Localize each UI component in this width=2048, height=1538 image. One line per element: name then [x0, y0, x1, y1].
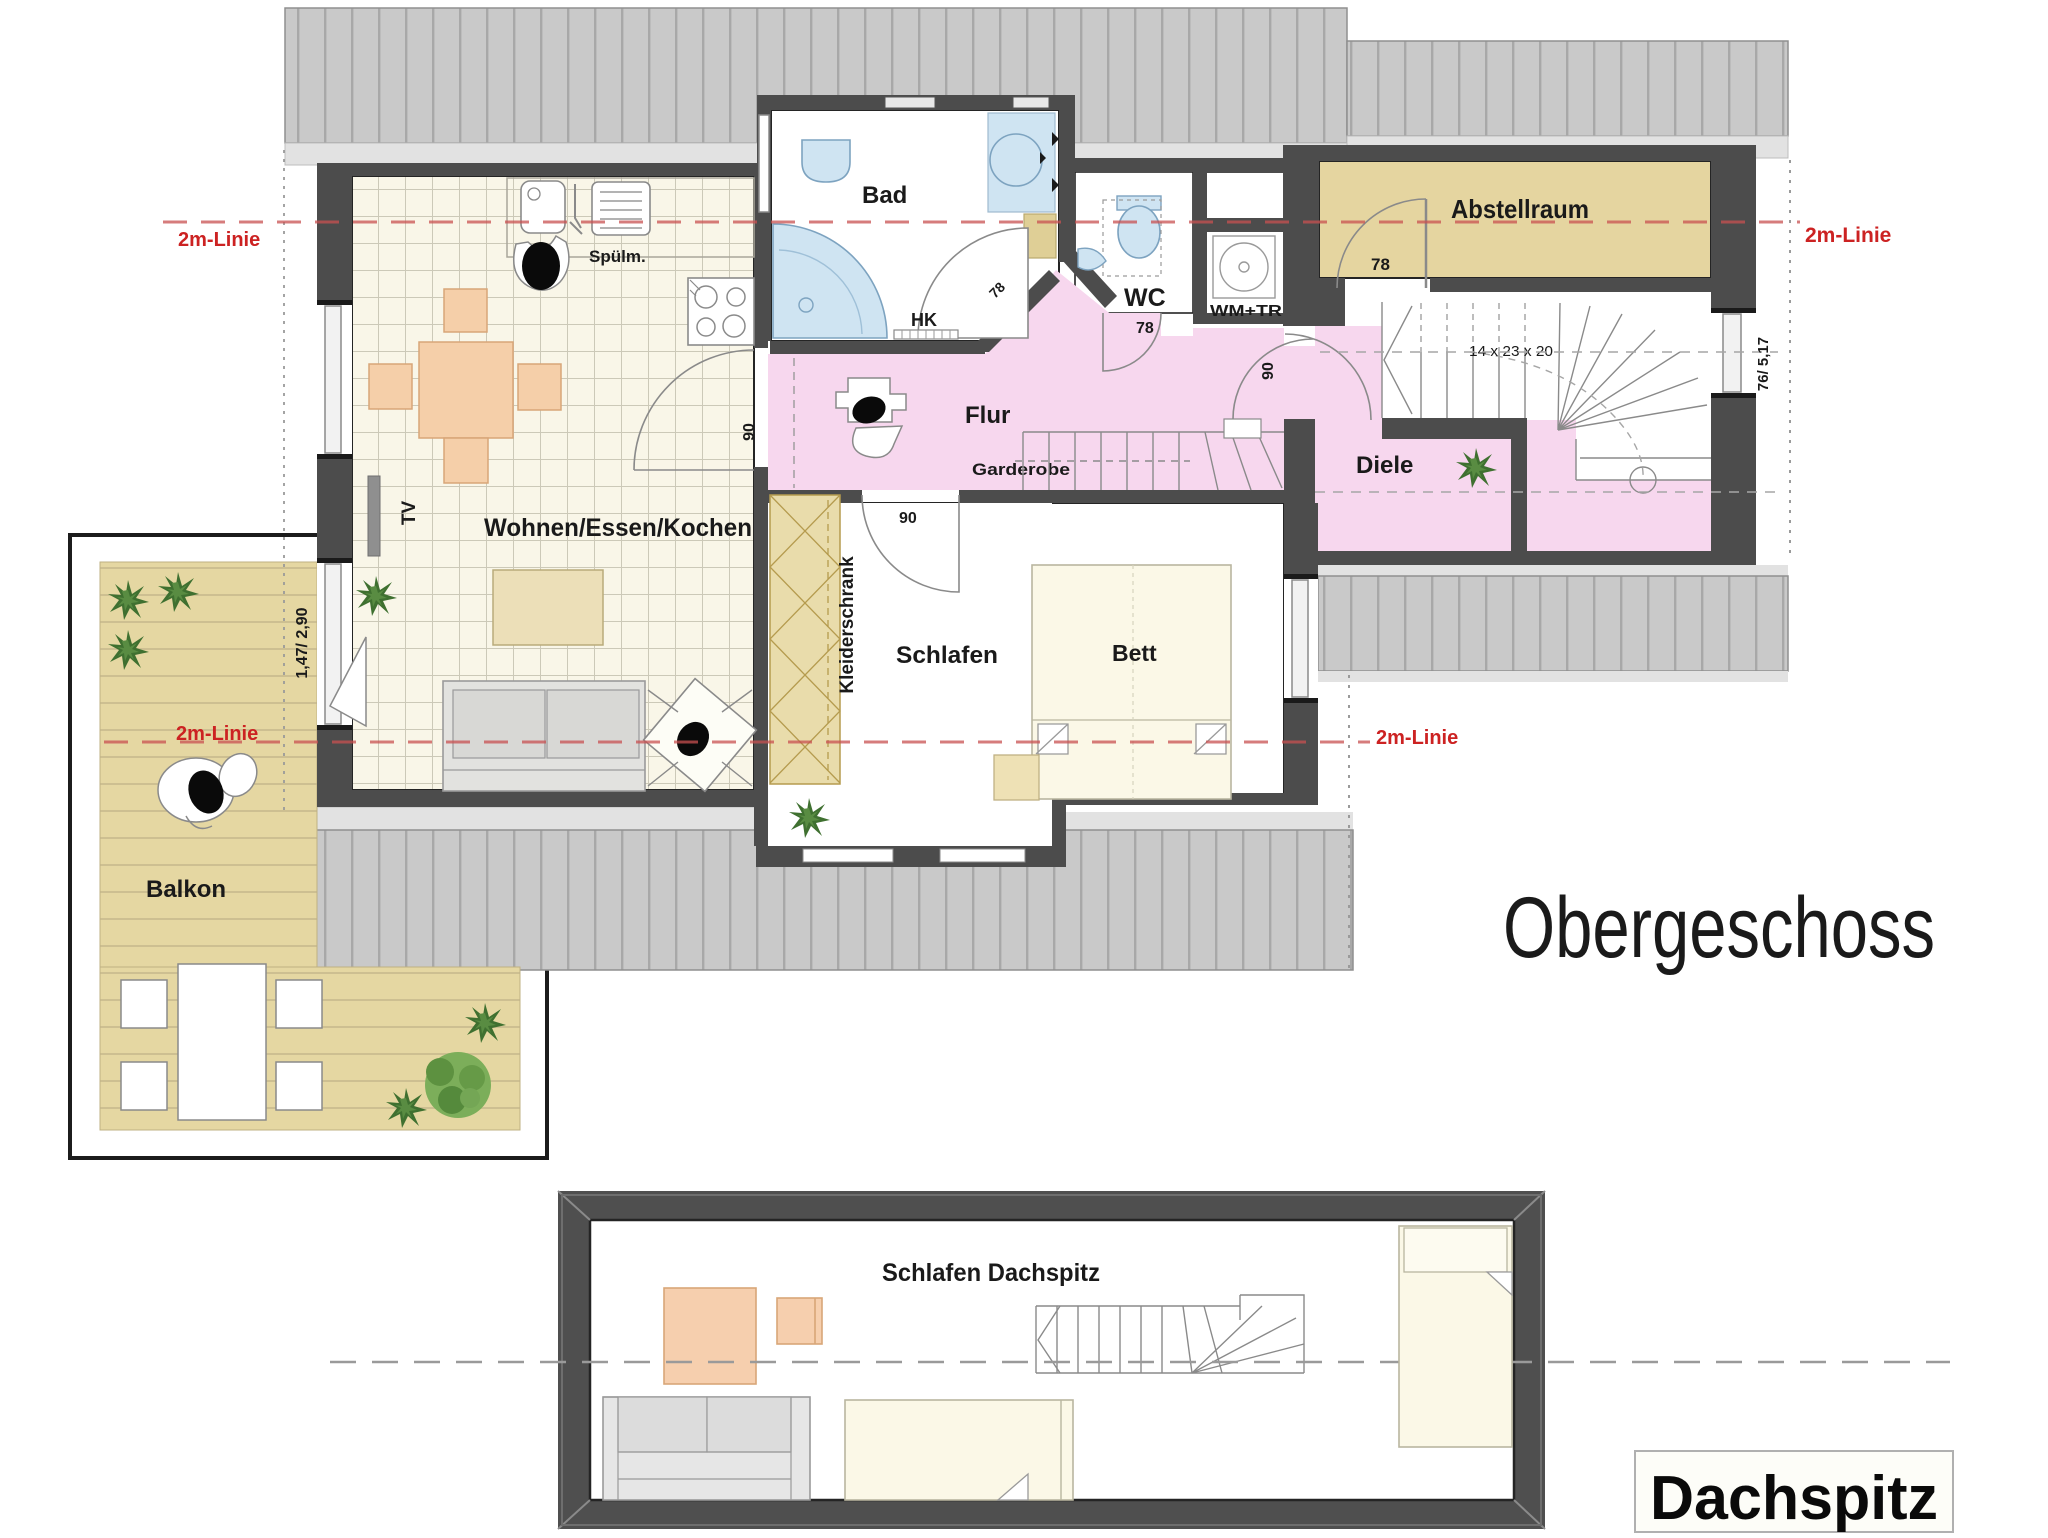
svg-text:HK: HK: [911, 310, 937, 330]
svg-text:Diele: Diele: [1356, 452, 1413, 479]
svg-text:2m-Linie: 2m-Linie: [1805, 224, 1891, 247]
svg-text:Wohnen/Essen/Kochen: Wohnen/Essen/Kochen: [484, 514, 752, 542]
svg-text:Schlafen: Schlafen: [896, 642, 998, 669]
svg-text:Obergeschoss: Obergeschoss: [1503, 880, 1935, 976]
svg-text:TV: TV: [399, 501, 420, 526]
svg-text:Abstellraum: Abstellraum: [1451, 194, 1589, 224]
svg-text:90: 90: [1260, 362, 1277, 380]
svg-text:90: 90: [899, 510, 917, 527]
svg-text:2m-Linie: 2m-Linie: [1376, 727, 1458, 749]
svg-text:90: 90: [741, 423, 758, 441]
svg-text:Dachspitz: Dachspitz: [1650, 1464, 1938, 1533]
svg-text:76/ 5,17: 76/ 5,17: [1755, 337, 1772, 391]
svg-text:Garderobe: Garderobe: [972, 460, 1070, 479]
svg-text:Schlafen Dachspitz: Schlafen Dachspitz: [882, 1259, 1100, 1287]
svg-text:2m-Linie: 2m-Linie: [178, 229, 260, 251]
svg-text:Flur: Flur: [965, 402, 1010, 429]
svg-text:Spülm.: Spülm.: [589, 247, 646, 266]
svg-text:Bad: Bad: [862, 182, 907, 209]
svg-text:Bett: Bett: [1112, 640, 1157, 666]
svg-text:78: 78: [1371, 255, 1390, 274]
svg-text:1,47/ 2,90: 1,47/ 2,90: [294, 607, 311, 678]
svg-text:78: 78: [1136, 320, 1154, 337]
svg-text:2m-Linie: 2m-Linie: [176, 723, 258, 745]
svg-text:Balkon: Balkon: [146, 876, 226, 903]
svg-text:WM+TR: WM+TR: [1210, 303, 1283, 320]
svg-text:Kleiderschrank: Kleiderschrank: [837, 556, 858, 694]
svg-text:WC: WC: [1124, 284, 1166, 312]
